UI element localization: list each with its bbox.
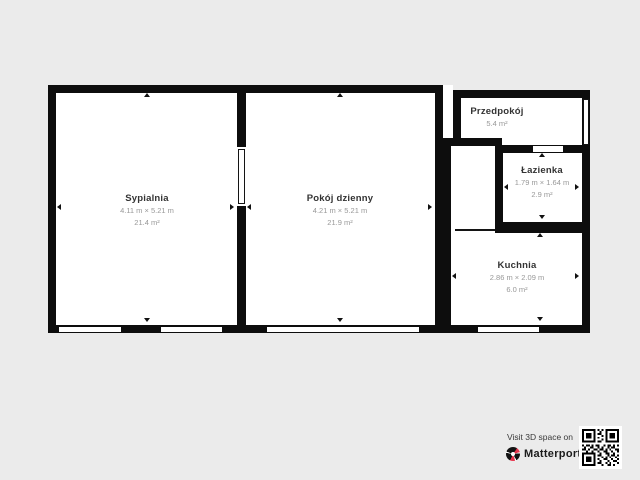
window-sypialnia-2 <box>160 326 223 333</box>
window-sypialnia-1 <box>58 326 122 333</box>
wall-divider <box>237 93 246 325</box>
wall-kuchnia-top <box>495 222 590 233</box>
room-fill-lazienka <box>503 153 582 222</box>
visit-3d-text: Visit 3D space on <box>495 432 585 442</box>
gap-between-blocks <box>443 85 453 138</box>
door-opening-lazienka <box>532 145 564 153</box>
window-pokoj-dzienny <box>266 326 420 333</box>
dimension-arrow-up-icon <box>337 93 343 97</box>
wall-right-top <box>453 90 590 98</box>
matterport-brand: Matterport™ <box>506 446 586 461</box>
door-leaf-entrance <box>583 99 589 145</box>
dimension-arrow-down-icon <box>144 318 150 322</box>
room-fill-kuchnia <box>451 233 582 325</box>
door-leaf-kuchnia <box>455 229 495 231</box>
floor-plan-canvas: Sypialnia 4.11 m × 5.21 m 21.4 m² Pokój … <box>0 0 640 480</box>
dimension-arrow-up-icon <box>539 153 545 157</box>
door-leaf-bedroom <box>238 149 245 204</box>
matterport-logo-icon <box>506 447 520 461</box>
dimension-arrow-right-icon <box>230 204 234 210</box>
qr-code-icon <box>579 426 622 469</box>
qr-code-svg <box>582 429 619 466</box>
dimension-arrow-up-icon <box>144 93 150 97</box>
matterport-wordmark: Matterport™ <box>524 448 586 460</box>
dimension-arrow-down-icon <box>337 318 343 322</box>
wall-right-left <box>443 138 451 333</box>
wall-przedpokoj-left <box>453 90 461 138</box>
dimension-arrow-right-icon <box>575 273 579 279</box>
window-kuchnia <box>477 326 540 333</box>
dimension-arrow-right-icon <box>428 204 432 210</box>
dimension-arrow-left-icon <box>247 204 251 210</box>
dimension-arrow-left-icon <box>452 273 456 279</box>
wall-lazienka-left <box>495 145 503 233</box>
dimension-arrow-down-icon <box>539 215 545 219</box>
dimension-arrow-left-icon <box>57 204 61 210</box>
dimension-arrow-down-icon <box>537 317 543 321</box>
dimension-arrow-right-icon <box>575 184 579 190</box>
dimension-arrow-up-icon <box>537 233 543 237</box>
dimension-arrow-left-icon <box>504 184 508 190</box>
wall-przedpokoj-bottom <box>443 138 502 146</box>
room-fill-corridor <box>451 146 495 233</box>
